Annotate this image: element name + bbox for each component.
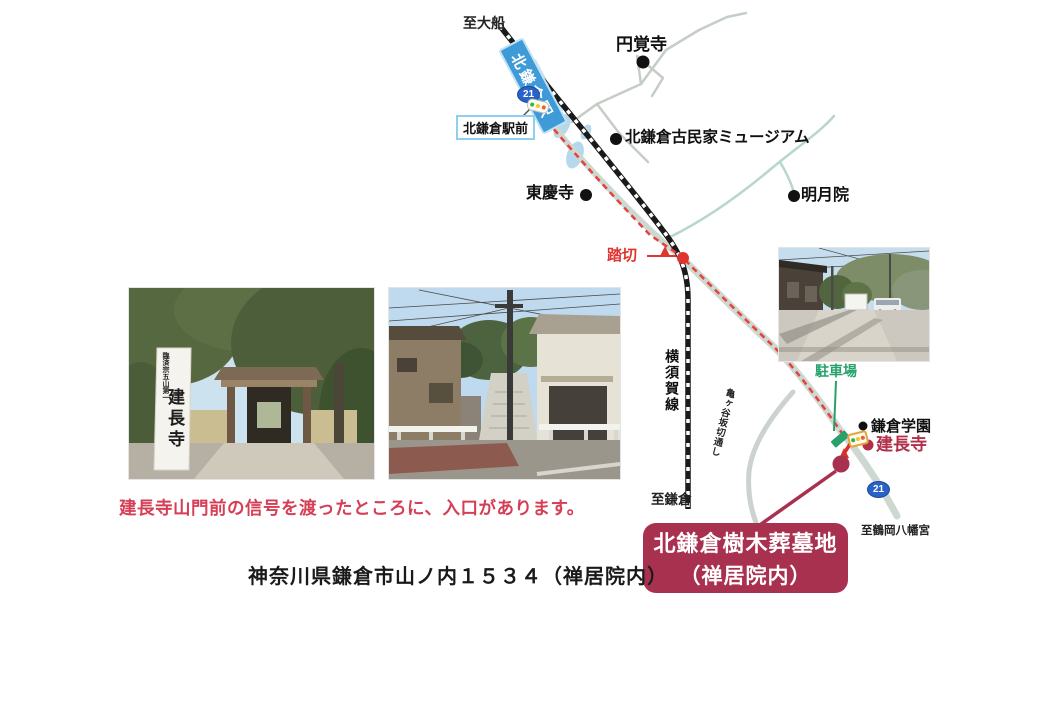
- museum-label: 北鎌倉古民家ミュージアム: [625, 129, 810, 147]
- engakuji-label: 円覚寺: [616, 35, 667, 55]
- crossing-label: 踏切: [607, 247, 637, 264]
- kenchoji-label: 建長寺: [876, 435, 927, 455]
- photo-kenchoji-gate: 臨済宗五山第一 建長寺: [128, 287, 375, 480]
- address-text: 神奈川県鎌倉市山ノ内１５３４（禅居院内）: [248, 560, 668, 589]
- destination-badge-line1: 北鎌倉樹木葬墓地: [653, 526, 837, 558]
- meigetsuin-label: 明月院: [801, 187, 849, 205]
- tokeiji-label: 東慶寺: [526, 185, 574, 203]
- photo-parking-lot: [778, 247, 930, 362]
- kamakura-gakuen-label: 鎌倉学園: [871, 418, 931, 435]
- pillar-title-text: 建長寺: [162, 388, 187, 451]
- route-21-badge-south: 21: [867, 481, 890, 498]
- destination-leader: [757, 471, 836, 527]
- to-kamakura-label: 至鎌倉: [651, 492, 692, 508]
- destination-badge-line2: （禅居院内）: [680, 560, 812, 590]
- to-ofuna-label: 至大船: [463, 15, 505, 31]
- parking-label: 駐車場: [815, 363, 857, 379]
- photo-entrance-street: [388, 287, 621, 480]
- yokosuka-line-label: 横須賀線: [664, 349, 680, 413]
- entrance-caption: 建長寺山門前の信号を渡ったところに、入口があります。: [119, 495, 585, 520]
- map-flyer: 北鎌倉駅 21 21 北鎌倉駅前 至大船 円覚寺 北鎌倉古民家ミュージアム 東慶…: [0, 0, 1037, 717]
- ekimae-label-box: 北鎌倉駅前: [456, 115, 535, 140]
- destination-badge: 北鎌倉樹木葬墓地 （禅居院内）: [643, 523, 848, 593]
- to-hachimangu-label: 至鶴岡八幡宮: [861, 525, 930, 538]
